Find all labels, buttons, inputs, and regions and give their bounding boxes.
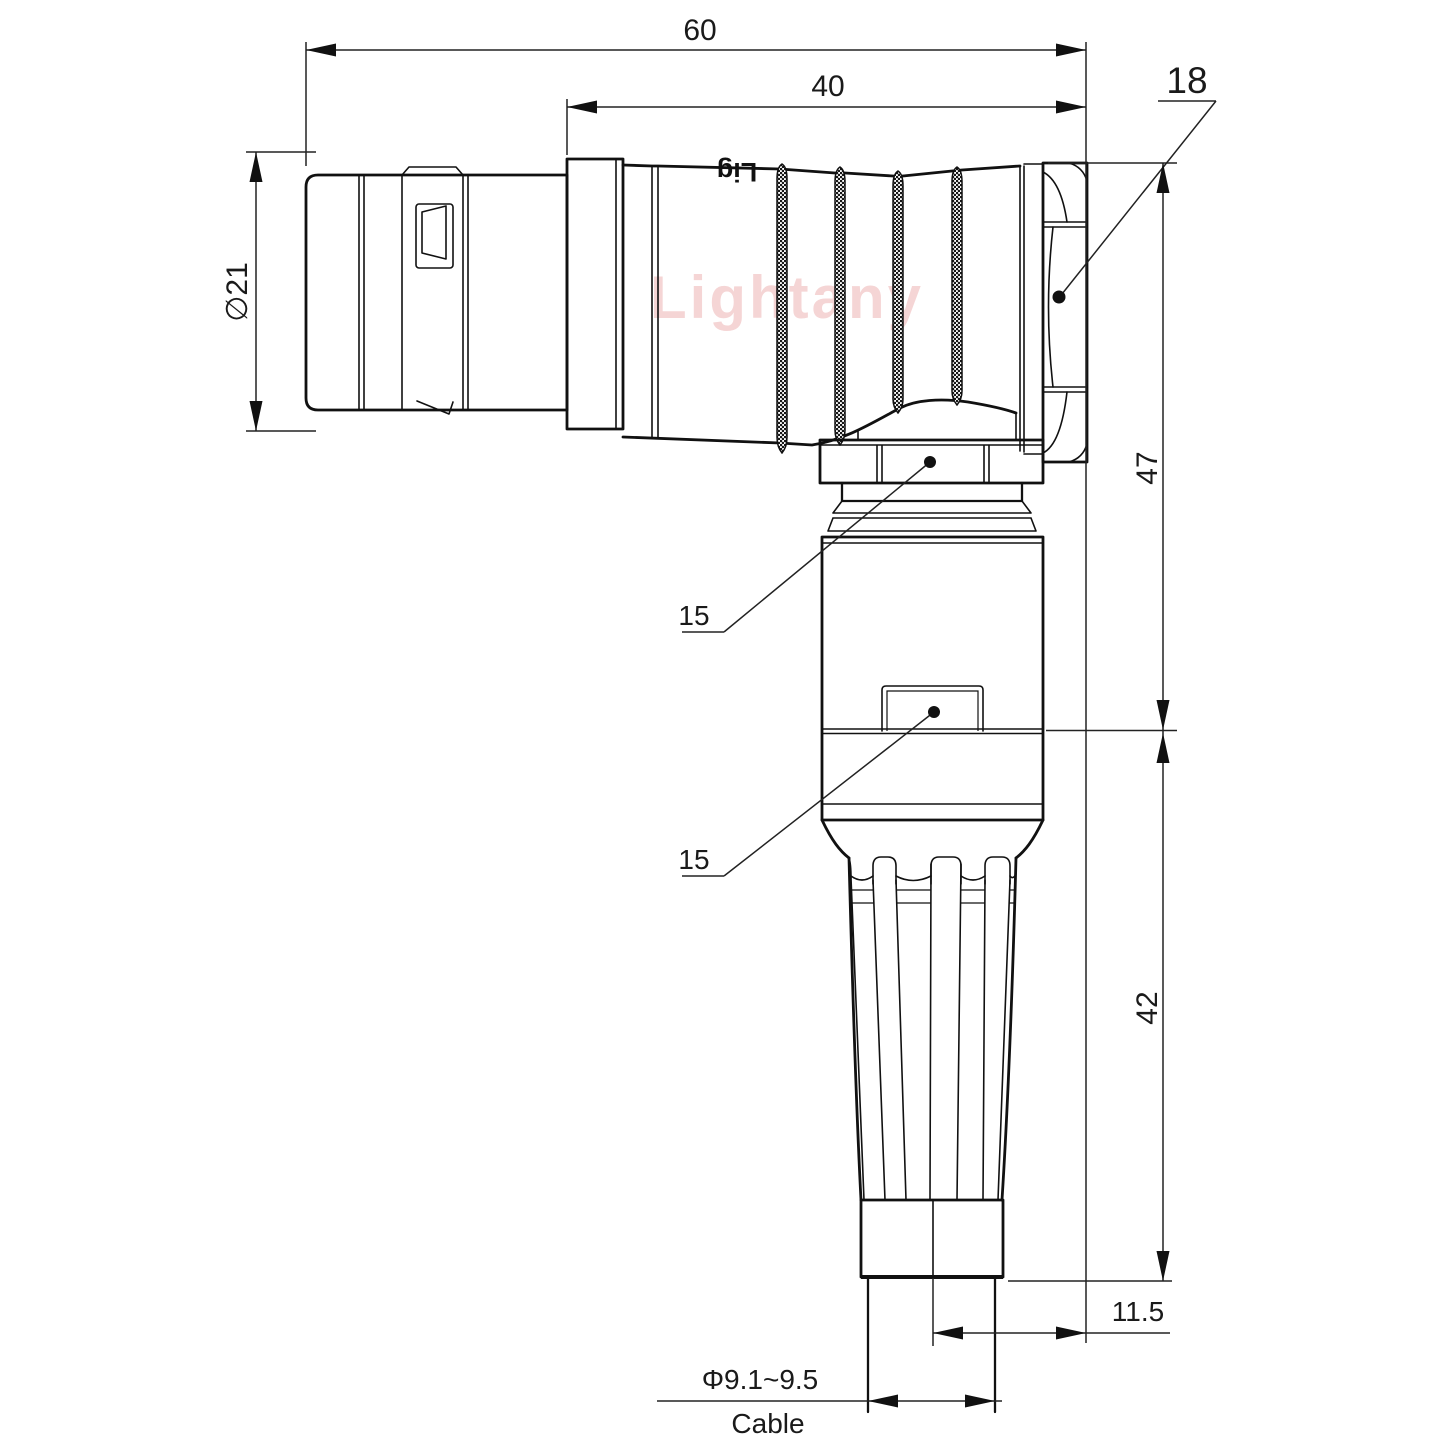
dim-text-15b: 15 [678, 844, 709, 875]
drawing-page: Lightany Lig [0, 0, 1440, 1440]
technical-drawing: Lightany Lig [0, 0, 1440, 1440]
dim-text-60: 60 [683, 14, 716, 47]
knurl-band-3 [893, 171, 903, 413]
canvas-background [0, 0, 1440, 1440]
dim-text-dia21: ∅21 [221, 262, 254, 322]
dim-text-47: 47 [1131, 451, 1164, 484]
dim-label-cable: Cable [731, 1408, 804, 1439]
knurl-band-1 [777, 164, 787, 453]
brand-marking: Lig [717, 157, 758, 187]
dim-text-cable-dia: Φ9.1~9.5 [702, 1364, 819, 1395]
dim-text-18: 18 [1166, 60, 1207, 101]
knurl-band-2 [835, 167, 845, 445]
dim-text-15a: 15 [678, 600, 709, 631]
dim-text-11-5: 11.5 [1112, 1296, 1164, 1327]
dim-text-40: 40 [811, 70, 844, 103]
knurl-band-4 [952, 167, 962, 405]
dim-text-42: 42 [1131, 991, 1164, 1024]
